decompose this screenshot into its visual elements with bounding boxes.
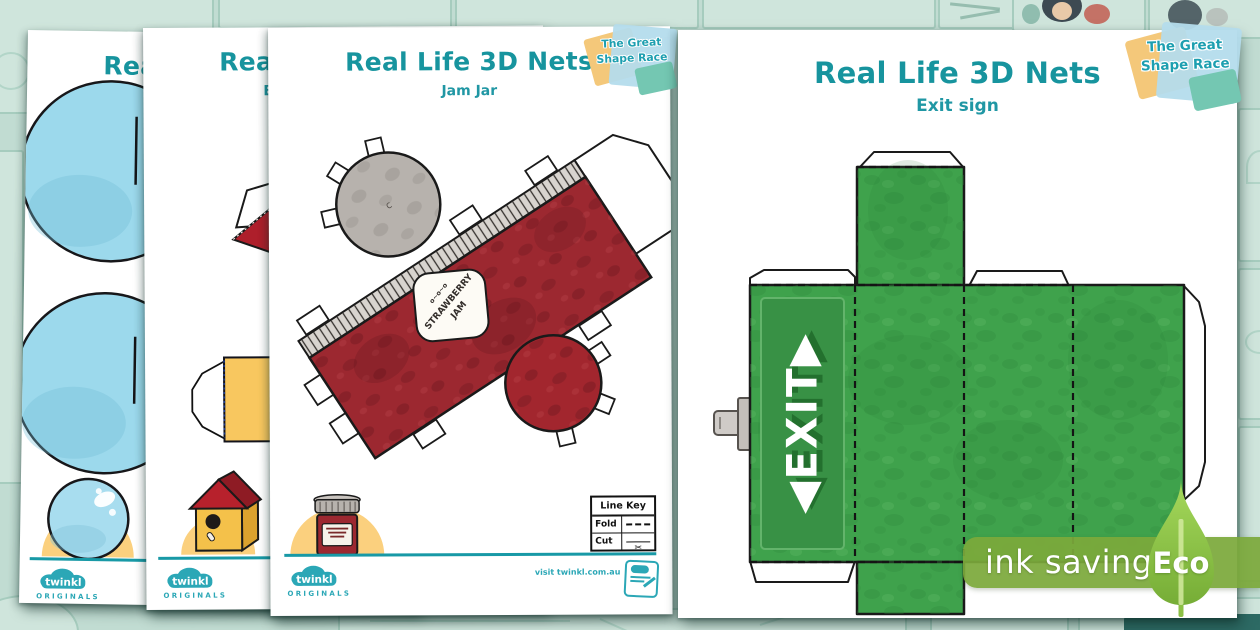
eco-text: Eco: [1146, 546, 1216, 580]
twinkl-brand-text: twinkl: [45, 576, 82, 589]
fold-row: Fold: [592, 515, 654, 532]
exit-sign-text: ◀EXIT▶: [778, 332, 827, 514]
cut-row: Cut ✂: [592, 532, 654, 549]
twinkl-stamp-icon: [624, 560, 660, 599]
bg-panel: [1238, 108, 1260, 262]
bg-panel: [218, 0, 452, 29]
line-key-header: Line Key: [592, 497, 654, 515]
jam-jar-illustration: [290, 494, 384, 555]
worksheet-page-jam-jar: Real Life 3D Nets Jam Jar The GreatShape…: [268, 26, 673, 616]
preview-stage: Real Life 3D Nets Bouncy ball: [0, 0, 1260, 630]
twinkl-logo: twinkl ORIGINALS: [35, 566, 106, 603]
bg-panel: [1238, 268, 1260, 420]
cut-line-sample: [626, 541, 650, 542]
line-key: Line Key Fold Cut ✂: [590, 495, 656, 551]
website-text: visit twinkl.com.au: [535, 567, 621, 576]
bg-panel: [455, 0, 699, 29]
bouncy-ball-illustration: [42, 478, 135, 559]
twinkl-logo: twinkl ORIGINALS: [162, 565, 232, 601]
bg-panel: [702, 0, 936, 29]
character-face: [1052, 2, 1072, 20]
originals-text: ORIGINALS: [163, 591, 227, 599]
bg-panel: [0, 150, 24, 484]
twinkl-logo: twinkl ORIGINALS: [286, 564, 356, 600]
twinkl-brand-text: twinkl: [172, 576, 208, 588]
birdhouse-illustration: [181, 471, 262, 554]
twinkl-brand-text: twinkl: [296, 574, 332, 586]
originals-text: ORIGINALS: [36, 592, 100, 601]
fold-line-sample: [626, 523, 650, 525]
originals-text: ORIGINALS: [287, 590, 351, 598]
bg-panel: [938, 0, 1022, 29]
ink-saving-text: ink saving: [985, 537, 1153, 588]
wall-mount-icon: [714, 398, 752, 450]
